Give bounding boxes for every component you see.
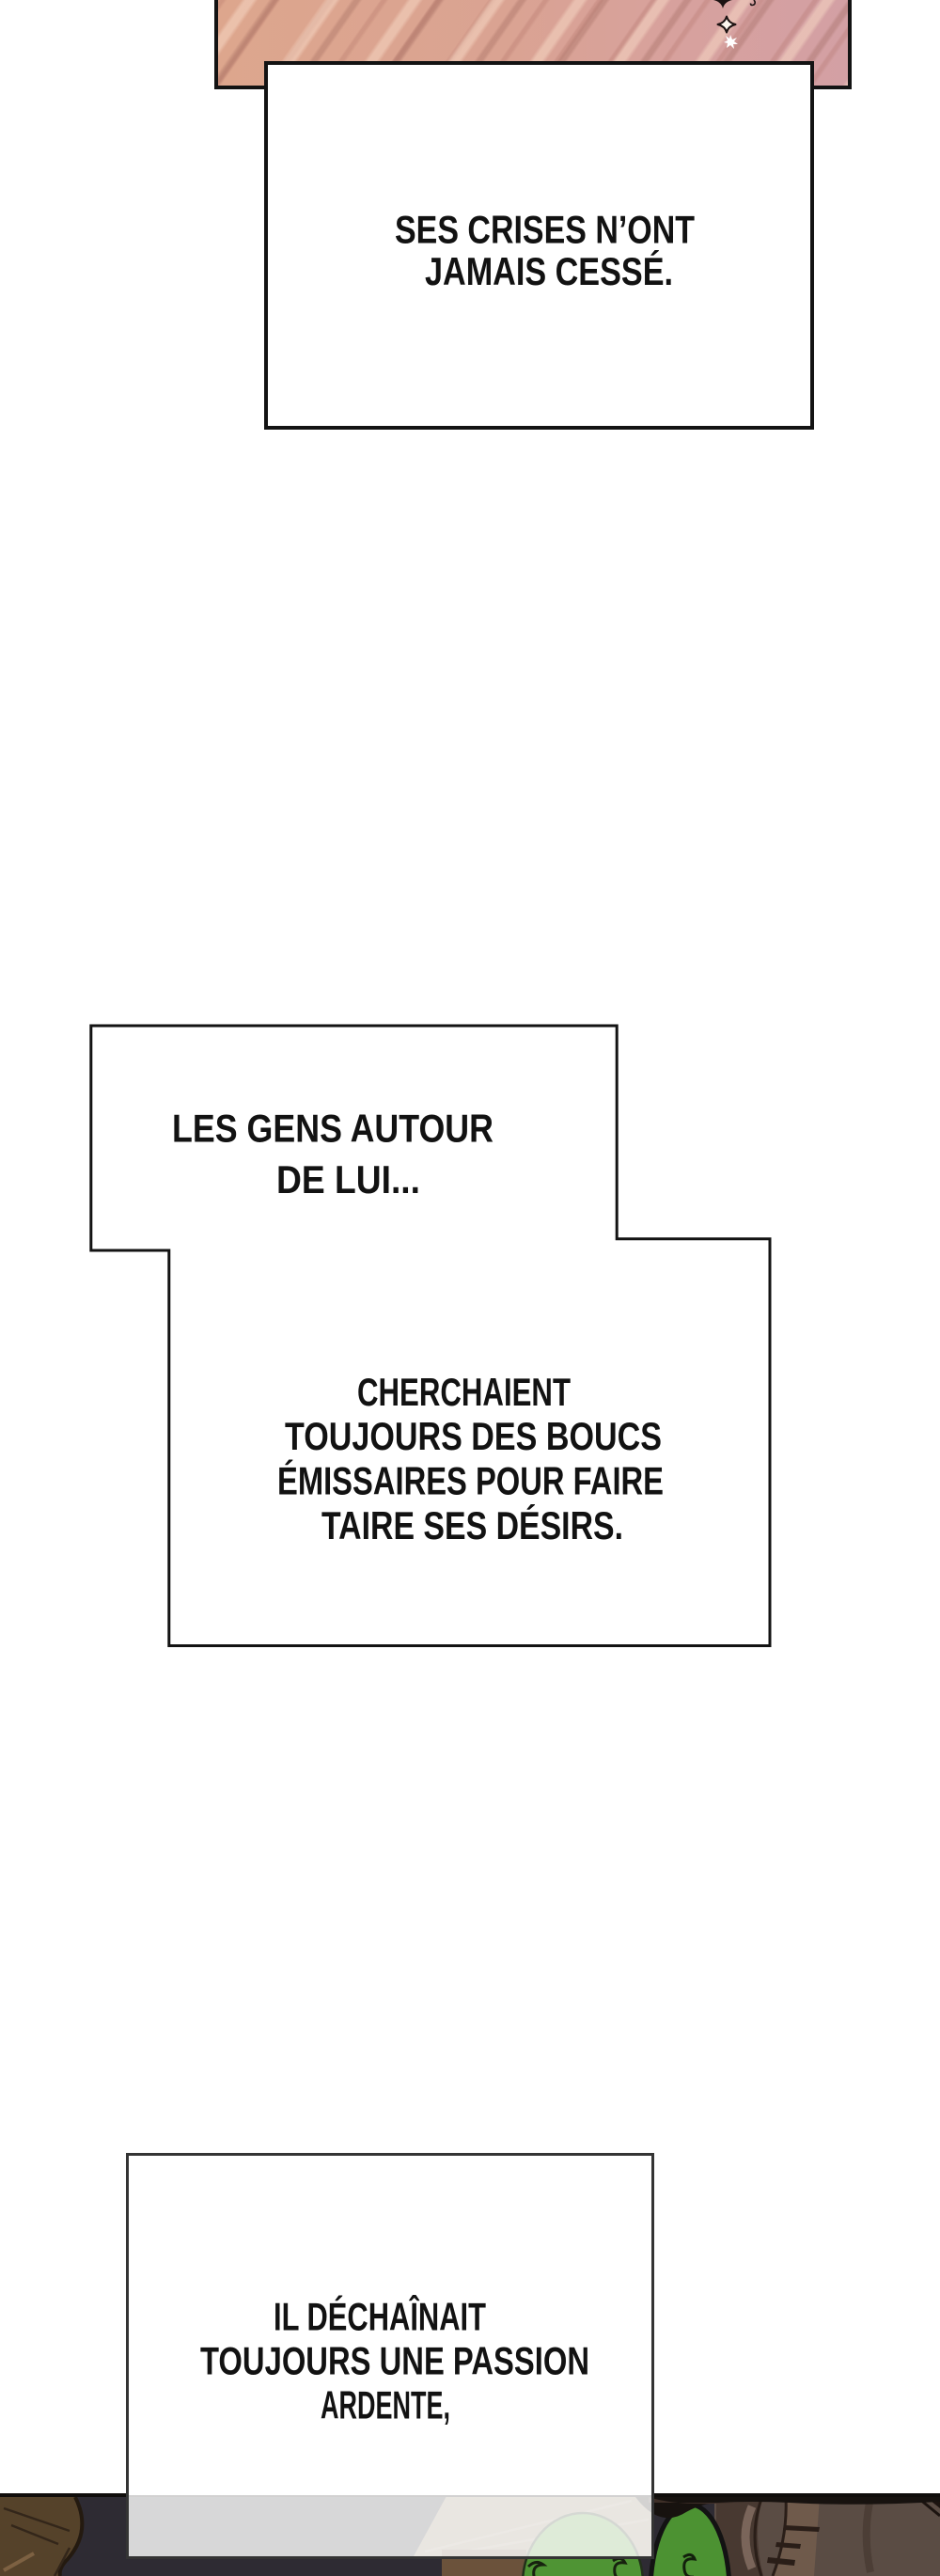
svg-text:LES GENS AUTOUR: LES GENS AUTOUR (172, 1107, 493, 1151)
svg-text:SES CRISES N’ONT: SES CRISES N’ONT (395, 208, 695, 252)
svg-text:IL DÉCHAÎNAIT: IL DÉCHAÎNAIT (274, 2294, 486, 2339)
svg-text:DE LUI...: DE LUI... (276, 1157, 420, 1202)
svg-text:ÉMISSAIRES POUR FAIRE: ÉMISSAIRES POUR FAIRE (277, 1459, 664, 1503)
svg-text:TOUJOURS DES BOUCS: TOUJOURS DES BOUCS (285, 1414, 662, 1458)
svg-text:ARDENTE,: ARDENTE, (321, 2383, 450, 2427)
svg-text:TOUJOURS UNE PASSION: TOUJOURS UNE PASSION (200, 2339, 589, 2383)
svg-text:TAIRE SES DÉSIRS.: TAIRE SES DÉSIRS. (321, 1503, 623, 1547)
svg-text:CHERCHAIENT: CHERCHAIENT (357, 1370, 571, 1414)
svg-text:JAMAIS CESSÉ.: JAMAIS CESSÉ. (425, 249, 673, 293)
